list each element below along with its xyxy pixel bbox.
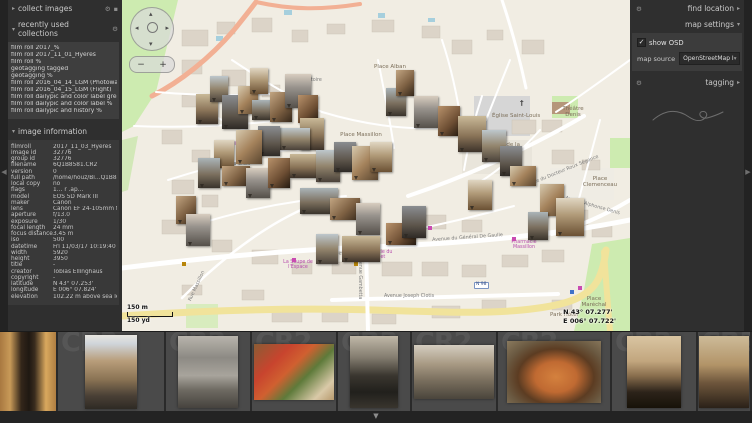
filmstrip-cell[interactable]: CR2 [252, 332, 338, 411]
filmstrip-thumbnail[interactable] [178, 336, 238, 408]
map-photo-marker[interactable] [246, 168, 270, 198]
find-location-module-header[interactable]: ⚙ find location ▸ [630, 0, 744, 16]
pan-down-icon[interactable]: ▾ [149, 40, 153, 48]
map-label: Rue Massillon [188, 270, 207, 302]
collection-item[interactable]: film roll dailypic and color label % [11, 101, 117, 108]
map-label: Église Saint-Louis [492, 113, 540, 119]
map-poi-marker [292, 258, 296, 262]
map-overlay: Place Albande l'Oratoire†Église Saint-Lo… [122, 0, 630, 331]
collection-item[interactable]: film roll 2017_11_01_Hyères [11, 52, 117, 59]
map-photo-marker[interactable] [356, 203, 380, 235]
left-panel-collapse-handle[interactable]: ◀ [0, 168, 8, 176]
collection-item[interactable]: film roll 2016_04_14_LGM (Photowalk) [11, 80, 117, 87]
map-source-value: OpenStreetMap I [683, 55, 734, 62]
pan-up-icon[interactable]: ▴ [149, 10, 153, 18]
collection-list: film roll 2017_%film roll 2017_11_01_Hyè… [8, 42, 119, 119]
map-poi-marker [428, 226, 432, 230]
expander-icon: ▾ [12, 128, 15, 135]
map-view[interactable]: Place Albande l'Oratoire†Église Saint-Lo… [122, 0, 630, 331]
map-label: Place Massillon [340, 132, 382, 138]
presets-gear-icon[interactable]: ⚙ [636, 79, 642, 87]
filmstrip-cell[interactable]: CR2 [0, 332, 58, 411]
map-photo-marker[interactable] [414, 96, 438, 128]
presets-gear-icon[interactable]: ⚙ [112, 25, 118, 33]
chevron-down-icon: ▾ [734, 56, 737, 62]
image-information-table: filmroll2017_11_03_Hyèresimage id32776gr… [8, 140, 119, 305]
find-location-title: find location [688, 4, 734, 13]
collect-images-module-header[interactable]: ▸ collect images ⚙ ▪ [8, 0, 122, 16]
image-information-module-header[interactable]: ▾ image information [8, 123, 122, 139]
map-photo-marker[interactable] [198, 158, 220, 188]
map-poi-marker [354, 262, 358, 266]
filmstrip-cell[interactable]: CR2 [698, 332, 752, 411]
map-photo-marker[interactable] [396, 70, 414, 96]
module-menu-icon[interactable]: ▪ [114, 5, 118, 13]
map-photo-marker[interactable] [468, 180, 492, 210]
map-scale-bar: 150 m 150 yd [127, 305, 173, 325]
filmstrip-cell[interactable]: CR2 [58, 332, 166, 411]
map-label: Avenue Joseph Clotis [384, 294, 434, 299]
recently-used-collections-module-header[interactable]: ▾ recently used collections ⚙ [8, 16, 122, 41]
presets-gear-icon[interactable]: ⚙ [636, 5, 642, 13]
filmstrip: CR2CR2CR2CR2CR2CR2CR2CR2CR2 ▼ [0, 331, 752, 423]
filmstrip-thumbnail[interactable] [350, 336, 398, 408]
expander-icon: ▸ [737, 5, 740, 12]
map-coordinates-readout: N 43° 07.277' E 006° 07.722' [563, 308, 616, 325]
filmstrip-gutter: ▼ [0, 411, 752, 423]
map-poi-marker [512, 237, 516, 241]
map-photo-marker[interactable] [510, 166, 536, 186]
filmstrip-thumbnail[interactable] [699, 336, 749, 408]
map-photo-marker[interactable] [370, 142, 392, 172]
map-photo-marker[interactable] [342, 236, 380, 262]
tagging-module-header[interactable]: ⚙ tagging ▸ [630, 74, 744, 90]
show-osd-checkbox[interactable]: ✓ [637, 38, 646, 47]
tagging-title: tagging [705, 78, 734, 87]
map-photo-marker[interactable] [268, 158, 290, 188]
darktable-map-view-window: ▸ collect images ⚙ ▪ ▾ recently used col… [0, 0, 752, 423]
filmstrip-cell[interactable]: CR2 [498, 332, 612, 411]
map-photo-marker[interactable] [438, 106, 460, 136]
map-photo-marker[interactable] [316, 234, 338, 264]
map-photo-marker[interactable] [250, 68, 268, 94]
filmstrip-thumbnail[interactable] [507, 341, 601, 403]
collection-item[interactable]: geotagging % [11, 73, 117, 80]
map-poi-marker [578, 286, 582, 290]
map-photo-marker[interactable] [186, 214, 210, 246]
pan-right-icon[interactable]: ▸ [165, 24, 169, 32]
image-info-value: 102.22 m above sea level [53, 294, 117, 300]
left-panel-gutter: ◀ [0, 0, 8, 331]
filmstrip-thumbnail[interactable] [414, 345, 494, 399]
collection-item[interactable]: film roll % [11, 59, 117, 66]
coordinate-longitude: E 006° 07.722' [563, 317, 616, 325]
map-label: Avenue du Général De Gaulle [432, 233, 503, 243]
right-panel-collapse-handle[interactable]: ▶ [744, 168, 752, 176]
expander-icon: ▾ [737, 21, 740, 28]
image-information-title: image information [18, 127, 87, 136]
image-info-row: elevation102.22 m above sea level [11, 294, 117, 300]
map-label: Place Maréchal [574, 296, 614, 308]
filmstrip-cells: CR2CR2CR2CR2CR2CR2CR2CR2CR2 [0, 332, 752, 411]
expander-icon: ▸ [12, 5, 15, 12]
map-label: La Soupe de l'Espace [278, 260, 318, 271]
map-poi-marker [570, 290, 574, 294]
map-label: Pharmacie Massillon [504, 240, 544, 251]
collection-item[interactable]: film roll 2017_% [11, 45, 117, 52]
right-panel: ⚙ find location ▸ map settings ▾ ✓ show … [630, 0, 752, 331]
map-zoom-control[interactable]: − + [129, 56, 175, 73]
presets-gear-icon[interactable]: ⚙ [105, 5, 111, 13]
zoom-in-button[interactable]: + [159, 60, 167, 70]
collect-images-title: collect images [18, 4, 72, 13]
collection-item[interactable]: geotagging tagged [11, 66, 117, 73]
map-photo-marker[interactable] [280, 128, 310, 150]
map-poi-marker [182, 262, 186, 266]
flourish-decoration [647, 104, 727, 130]
map-settings-body: ✓ show OSD map source OpenStreetMap I ▾ [632, 33, 742, 71]
map-settings-module-header[interactable]: map settings ▾ [630, 16, 744, 32]
filmstrip-cell[interactable]: CR2 [166, 332, 252, 411]
coordinate-latitude: N 43° 07.277' [563, 308, 616, 316]
filmstrip-cell[interactable]: CR2 [612, 332, 698, 411]
right-panel-gutter: ▶ [744, 0, 752, 331]
expander-icon: ▸ [737, 79, 740, 86]
show-osd-checkbox-row[interactable]: ✓ show OSD [637, 38, 737, 47]
map-photo-marker[interactable] [236, 130, 262, 164]
map-settings-title: map settings [685, 20, 734, 29]
collection-item[interactable]: film roll dailypic and color label green [11, 94, 117, 101]
map-photo-marker[interactable] [528, 212, 548, 240]
pan-center-icon[interactable] [147, 22, 158, 33]
filmstrip-thumbnail[interactable] [627, 336, 681, 408]
left-panel: ▸ collect images ⚙ ▪ ▾ recently used col… [0, 0, 122, 331]
map-source-select[interactable]: OpenStreetMap I ▾ [679, 52, 740, 65]
collection-item[interactable]: film roll 2016_04_15_LGM (Flight) [11, 87, 117, 94]
map-photo-marker[interactable] [402, 206, 426, 238]
map-label: Place Clemenceau [576, 176, 624, 188]
pan-left-icon[interactable]: ◂ [135, 24, 139, 32]
filmstrip-cell[interactable]: CR2 [338, 332, 412, 411]
map-label: Théâtre Denis [556, 106, 590, 118]
scale-imperial-label: 150 yd [127, 318, 173, 325]
filmstrip-thumbnail[interactable] [0, 332, 56, 411]
filmstrip-thumbnail[interactable] [254, 344, 334, 400]
map-photo-marker[interactable] [556, 198, 584, 236]
recently-used-collections-title: recently used collections [18, 20, 109, 38]
map-label: † [520, 100, 524, 108]
bottom-panel-collapse-handle[interactable]: ▼ [373, 412, 378, 420]
map-label: N 98 [474, 282, 489, 289]
map-source-label: map source [637, 55, 675, 63]
collection-item[interactable]: film roll dailypic and history % [11, 108, 117, 115]
filmstrip-thumbnail[interactable] [85, 335, 137, 409]
map-pan-control[interactable]: ▴ ▾ ◂ ▸ [130, 7, 174, 51]
zoom-out-button[interactable]: − [137, 60, 145, 70]
image-info-label: elevation [11, 294, 53, 300]
expander-icon: ▾ [12, 26, 15, 33]
show-osd-label: show OSD [649, 39, 684, 47]
scale-metric-label: 150 m [127, 305, 173, 312]
filmstrip-cell[interactable]: CR2 [412, 332, 498, 411]
